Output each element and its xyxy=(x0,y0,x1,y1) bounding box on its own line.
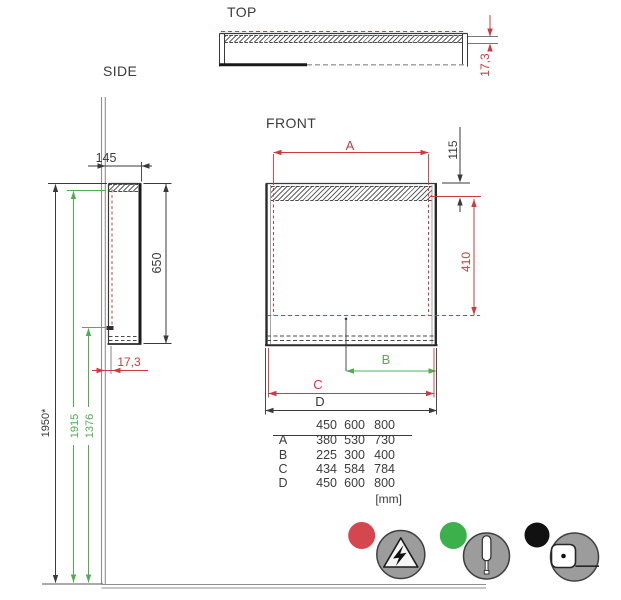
dim-label-lamp-height: 115 xyxy=(446,132,460,168)
dim-label-b: B xyxy=(376,353,396,367)
size-table: 450 600 800 A 380 530 730 B 225 300 400 … xyxy=(272,418,412,490)
dim-label-c: C xyxy=(308,378,328,392)
red-dot-icon xyxy=(348,522,375,549)
side-view-label: SIDE xyxy=(103,64,137,78)
arrow-right-icon xyxy=(421,150,429,155)
front-view-label: FRONT xyxy=(266,116,316,130)
dim-label-height-total: 1950* xyxy=(39,405,53,441)
front-view xyxy=(265,127,481,415)
cell-b-450: 225 xyxy=(294,448,337,462)
top-view-label: TOP xyxy=(227,5,257,19)
cell-d-800: 800 xyxy=(365,476,395,490)
row-label-d: D xyxy=(272,476,294,490)
dim-d xyxy=(266,348,438,415)
wall-line xyxy=(102,97,106,585)
arrow-down-icon xyxy=(53,575,58,583)
black-dot-icon xyxy=(525,523,550,548)
green-dot-icon xyxy=(440,522,467,549)
cell-c-600: 584 xyxy=(337,462,365,476)
screwdriver-icon xyxy=(464,533,510,579)
technical-drawing: TOP SIDE FRONT 17,3 145 650 17,3 1950* 1… xyxy=(0,0,621,600)
arrow-down-icon xyxy=(163,336,168,344)
dim-b xyxy=(346,368,437,373)
side-view xyxy=(42,97,486,588)
unit-label: [mm] xyxy=(352,492,402,506)
legend xyxy=(348,522,599,581)
dim-label-height-upper: 1915 xyxy=(68,407,82,445)
table-row: B 225 300 400 xyxy=(272,448,412,462)
dim-label-top-lamp-depth: 17,3 xyxy=(478,48,492,82)
dim-label-side-depth: 145 xyxy=(88,151,124,165)
arrow-right-icon xyxy=(97,368,105,373)
dim-a xyxy=(274,150,429,185)
arrow-up-icon xyxy=(471,199,476,207)
size-table-header: 450 600 800 xyxy=(272,418,412,432)
arrow-left-icon xyxy=(274,150,282,155)
arrow-up-icon xyxy=(163,184,168,192)
arrow-up-icon xyxy=(53,184,58,192)
tape-measure-icon xyxy=(551,533,600,581)
cell-b-800: 400 xyxy=(365,448,395,462)
arrow-left-icon xyxy=(142,163,150,168)
arrow-up-icon xyxy=(71,191,76,199)
arrow-right-icon xyxy=(426,391,434,396)
electrical-hazard-icon xyxy=(377,531,425,579)
table-row: C 434 584 784 xyxy=(272,462,412,476)
floor-line xyxy=(102,585,487,589)
drawing-lines xyxy=(0,0,621,600)
arrow-left-icon xyxy=(346,368,354,373)
size-col-800: 800 xyxy=(365,418,395,432)
arrow-down-icon xyxy=(487,29,492,37)
arrow-down-icon xyxy=(71,575,76,583)
top-view xyxy=(219,15,498,67)
dim-label-side-height: 650 xyxy=(150,245,164,281)
arrow-left-icon xyxy=(269,391,277,396)
arrow-up-icon xyxy=(457,198,462,206)
arrow-right-icon xyxy=(429,408,437,413)
dim-1915 xyxy=(67,191,106,583)
cell-c-800: 784 xyxy=(365,462,395,476)
table-row: D 450 600 800 xyxy=(272,476,412,490)
size-col-450: 450 xyxy=(294,418,337,432)
cell-c-450: 434 xyxy=(294,462,337,476)
dim-label-height-lower: 1376 xyxy=(83,407,97,445)
row-label-b: B xyxy=(272,448,294,462)
size-col-600: 600 xyxy=(337,418,365,432)
row-label-c: C xyxy=(272,462,294,476)
dim-label-mirror-height: 410 xyxy=(459,244,473,280)
table-header-rule xyxy=(273,435,412,436)
arrow-down-icon xyxy=(86,575,91,583)
dim-1376 xyxy=(82,328,106,583)
cell-b-600: 300 xyxy=(337,448,365,462)
dim-label-a: A xyxy=(340,139,360,153)
dim-1950 xyxy=(48,184,107,584)
arrow-up-icon xyxy=(86,328,91,336)
dim-label-side-lamp-depth: 17,3 xyxy=(111,355,147,369)
cell-d-450: 450 xyxy=(294,476,337,490)
cell-d-600: 600 xyxy=(337,476,365,490)
arrow-down-icon xyxy=(471,307,476,315)
arrow-left-icon xyxy=(266,408,274,413)
arrow-down-icon xyxy=(457,175,462,183)
dim-label-d: D xyxy=(310,395,330,409)
arrow-right-icon xyxy=(429,368,437,373)
